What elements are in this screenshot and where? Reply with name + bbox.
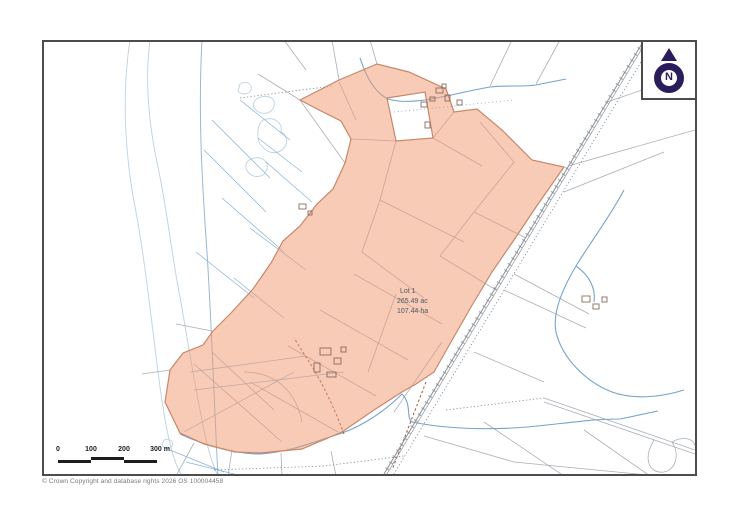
compass-letter: N [665, 72, 673, 83]
north-arrow-box: N [641, 42, 695, 100]
land-plan-page: Lot 1 265.49 ac 107.44 ha N 0 100 200 30… [0, 0, 737, 520]
parcel-label-hectares: 107.44 ha [397, 308, 428, 315]
map-frame: Lot 1 265.49 ac 107.44 ha N 0 100 200 30… [42, 40, 697, 476]
scale-bar: 0 100 200 300 m [58, 446, 188, 464]
highlight-parcel [165, 64, 564, 453]
north-arrow-icon [661, 48, 677, 61]
scale-tick-0: 0 [56, 446, 60, 453]
scale-bar-blocks [58, 457, 188, 464]
parcel-label-lot: Lot 1 [400, 288, 416, 295]
parcel-label-acres: 265.49 ac [397, 298, 428, 305]
scale-bar-labels: 0 100 200 300 m [58, 446, 188, 455]
compass-ring-icon: N [654, 63, 684, 93]
copyright-text: © Crown Copyright and database rights 20… [42, 478, 223, 485]
scale-tick-100: 100 [85, 446, 97, 453]
scale-tick-200: 200 [118, 446, 130, 453]
map-canvas: Lot 1 265.49 ac 107.44 ha [44, 42, 695, 474]
scale-tick-300: 300 m [150, 446, 170, 453]
